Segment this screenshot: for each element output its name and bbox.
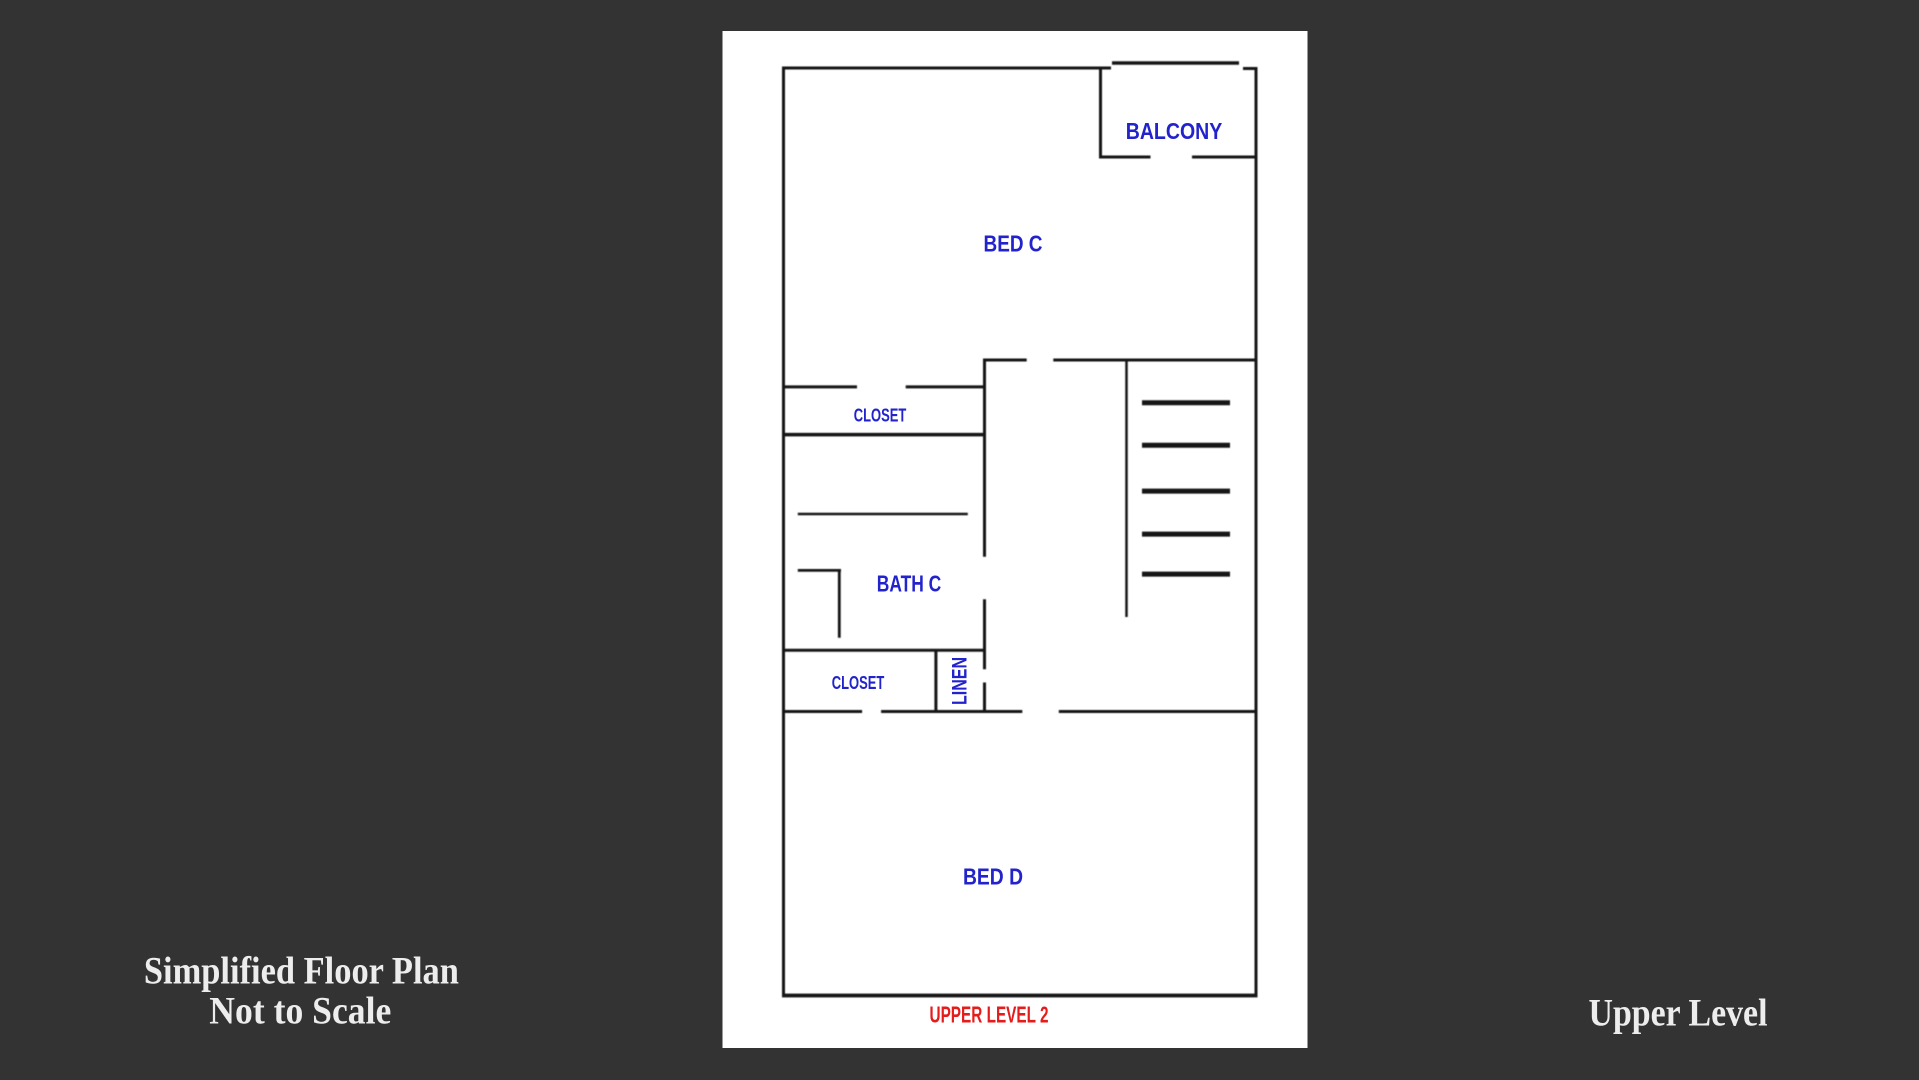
svg-text:BALCONY: BALCONY [1126, 118, 1223, 144]
svg-text:Upper Level: Upper Level [1589, 991, 1768, 1034]
svg-text:BED C: BED C [984, 231, 1043, 257]
svg-text:LINEN: LINEN [949, 657, 972, 705]
svg-text:UPPER LEVEL 2: UPPER LEVEL 2 [930, 1002, 1049, 1028]
svg-text:CLOSET: CLOSET [832, 673, 885, 693]
svg-text:CLOSET: CLOSET [854, 406, 907, 426]
svg-text:BED D: BED D [963, 864, 1023, 890]
svg-text:Not to Scale: Not to Scale [209, 990, 391, 1033]
svg-text:BATH C: BATH C [877, 571, 942, 597]
svg-text:Simplified Floor Plan: Simplified Floor Plan [144, 950, 459, 993]
